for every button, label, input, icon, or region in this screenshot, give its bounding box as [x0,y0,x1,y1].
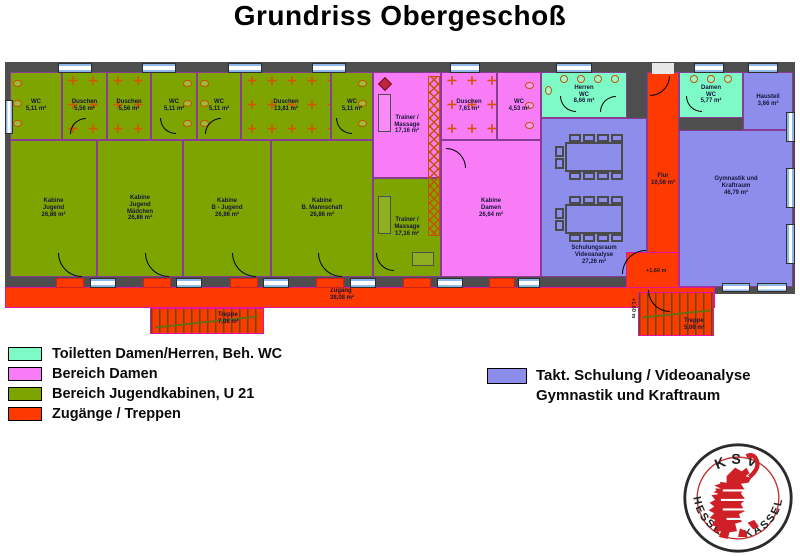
window-icon [786,168,795,208]
door-opening [230,278,258,288]
urinal-fixture-icon [611,75,619,83]
stairs-right-label: Treppe 5,06 m² [684,318,705,332]
window-icon [518,278,540,288]
door-opening [403,278,431,288]
door-opening [489,278,515,288]
wc-fixture-icon [183,100,192,107]
legend-right-line2: Gymnastik und Kraftraum [536,386,751,406]
corridor-zugang [5,287,715,308]
legend-swatch-zugaenge [8,407,42,421]
room-kabine-jugend: Kabine Jugend 26,86 m² [10,140,97,277]
entry-opening [652,63,674,74]
legend-item: Zugänge / Treppen [8,406,282,422]
door-opening [316,278,344,288]
window-icon [90,278,116,288]
window-icon [142,63,176,73]
urinal-fixture-icon [577,75,585,83]
legend-swatch-toiletten [8,347,42,361]
legend-item: Toiletten Damen/Herren, Beh. WC [8,346,282,362]
legend-right: Takt. Schulung / Videoanalyse Gymnastik … [487,366,751,407]
room-kabine-b-jugend: Kabine B - Jugend 26,86 m² [183,140,271,277]
legend-swatch-jugend [8,387,42,401]
window-icon [350,278,376,288]
urinal-fixture-icon [690,75,698,83]
room-duschen-damen: Duschen 7,61 m² [441,72,497,140]
room-duschen-2: Duschen 5,56 m² [107,72,151,140]
page-title: Grundriss Obergeschoß [0,0,800,32]
window-icon [312,63,346,73]
urinal-fixture-icon [724,75,732,83]
room-kabine-jugend-maedchen: Kabine Jugend Mädchen 26,86 m² [97,140,183,277]
stairs-left [150,308,264,334]
wc-fixture-icon [545,86,552,95]
urinal-fixture-icon [707,75,715,83]
legend-item: Bereich Damen [8,366,282,382]
level-mark: +1,60 m [630,298,636,318]
urinal-fixture-icon [594,75,602,83]
window-icon [556,63,592,73]
door-opening [143,278,171,288]
desk [412,252,434,266]
massage-bed [378,94,391,132]
wc-fixture-icon [200,80,209,87]
level-mark: +1,60 m [646,268,666,274]
wc-fixture-icon [525,82,534,89]
stair-run-line [156,315,259,327]
stairs-left-label: Treppe 7,08 m² [218,312,239,326]
floorplan-page: { "title": "Grundriss Obergeschoß", "roo… [0,0,800,556]
window-icon [437,278,463,288]
window-icon [176,278,202,288]
corridor-label: Zugang 38,08 m² [330,288,354,302]
room-gymnastik-kraftraum: Gymnastik und Kraftraum 46,79 m² [679,130,793,287]
legend-right-text: Takt. Schulung / Videoanalyse Gymnastik … [536,366,751,407]
window-icon [263,278,289,288]
massage-bed [378,196,391,234]
legend-left: Toiletten Damen/Herren, Beh. WC Bereich … [8,346,282,422]
wc-fixture-icon [13,120,22,127]
urinal-fixture-icon [560,75,568,83]
window-icon [748,63,778,73]
wc-fixture-icon [200,100,209,107]
window-icon [5,100,13,134]
window-icon [58,63,92,73]
window-icon [757,283,787,292]
shaft [428,76,440,236]
window-icon [228,63,262,73]
legend-item: Bereich Jugendkabinen, U 21 [8,386,282,402]
door-opening [56,278,84,288]
room-duschen-gross: Duschen 13,81 m² [241,72,331,140]
legend-swatch-schulung-gym [487,368,527,384]
window-icon [786,224,795,264]
room-wc-damen: WC 4,53 m² [497,72,541,140]
room-schulungsraum: Schulungsraum Videoanalyse 27,26 m² [541,118,647,277]
legend-swatch-damen [8,367,42,381]
wc-fixture-icon [358,120,367,127]
wc-fixture-icon [13,100,22,107]
ksv-hessen-kassel-logo: KSV HESSEN KASSEL [681,441,795,555]
window-icon [450,63,480,73]
wc-fixture-icon [525,122,534,129]
wc-fixture-icon [183,120,192,127]
wc-fixture-icon [13,80,22,87]
wc-fixture-icon [358,80,367,87]
legend-right-line1: Takt. Schulung / Videoanalyse [536,366,751,386]
wc-fixture-icon [183,80,192,87]
window-icon [722,283,750,292]
window-icon [694,63,724,73]
window-icon [786,112,795,142]
stair-run-line [642,310,710,319]
